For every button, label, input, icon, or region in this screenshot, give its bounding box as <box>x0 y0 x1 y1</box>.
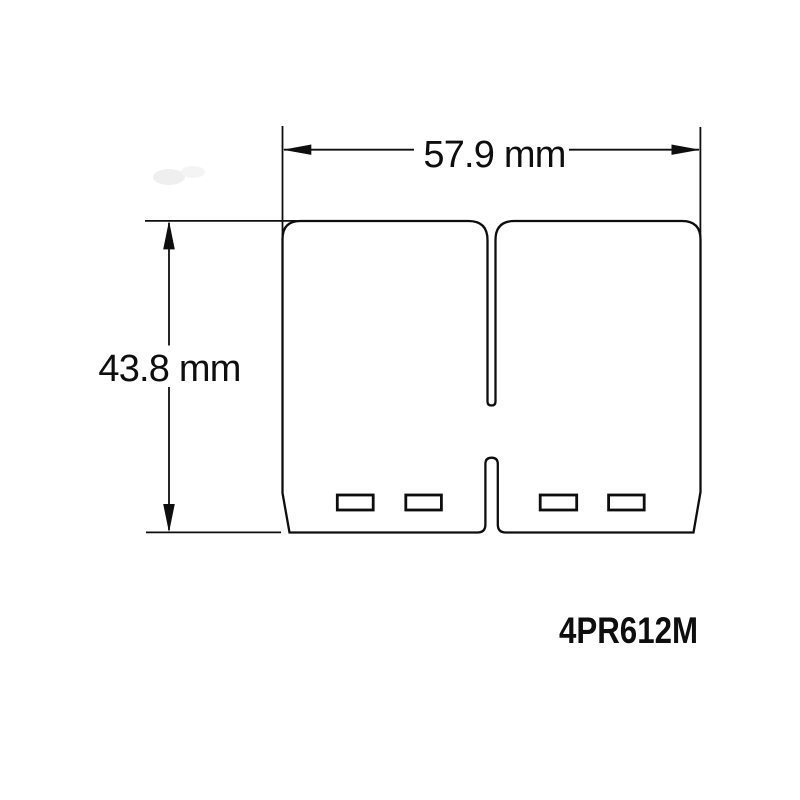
svg-text:43.8 mm: 43.8 mm <box>98 348 240 390</box>
svg-text:4PR612M: 4PR612M <box>559 610 698 651</box>
svg-text:57.9 mm: 57.9 mm <box>423 134 565 176</box>
